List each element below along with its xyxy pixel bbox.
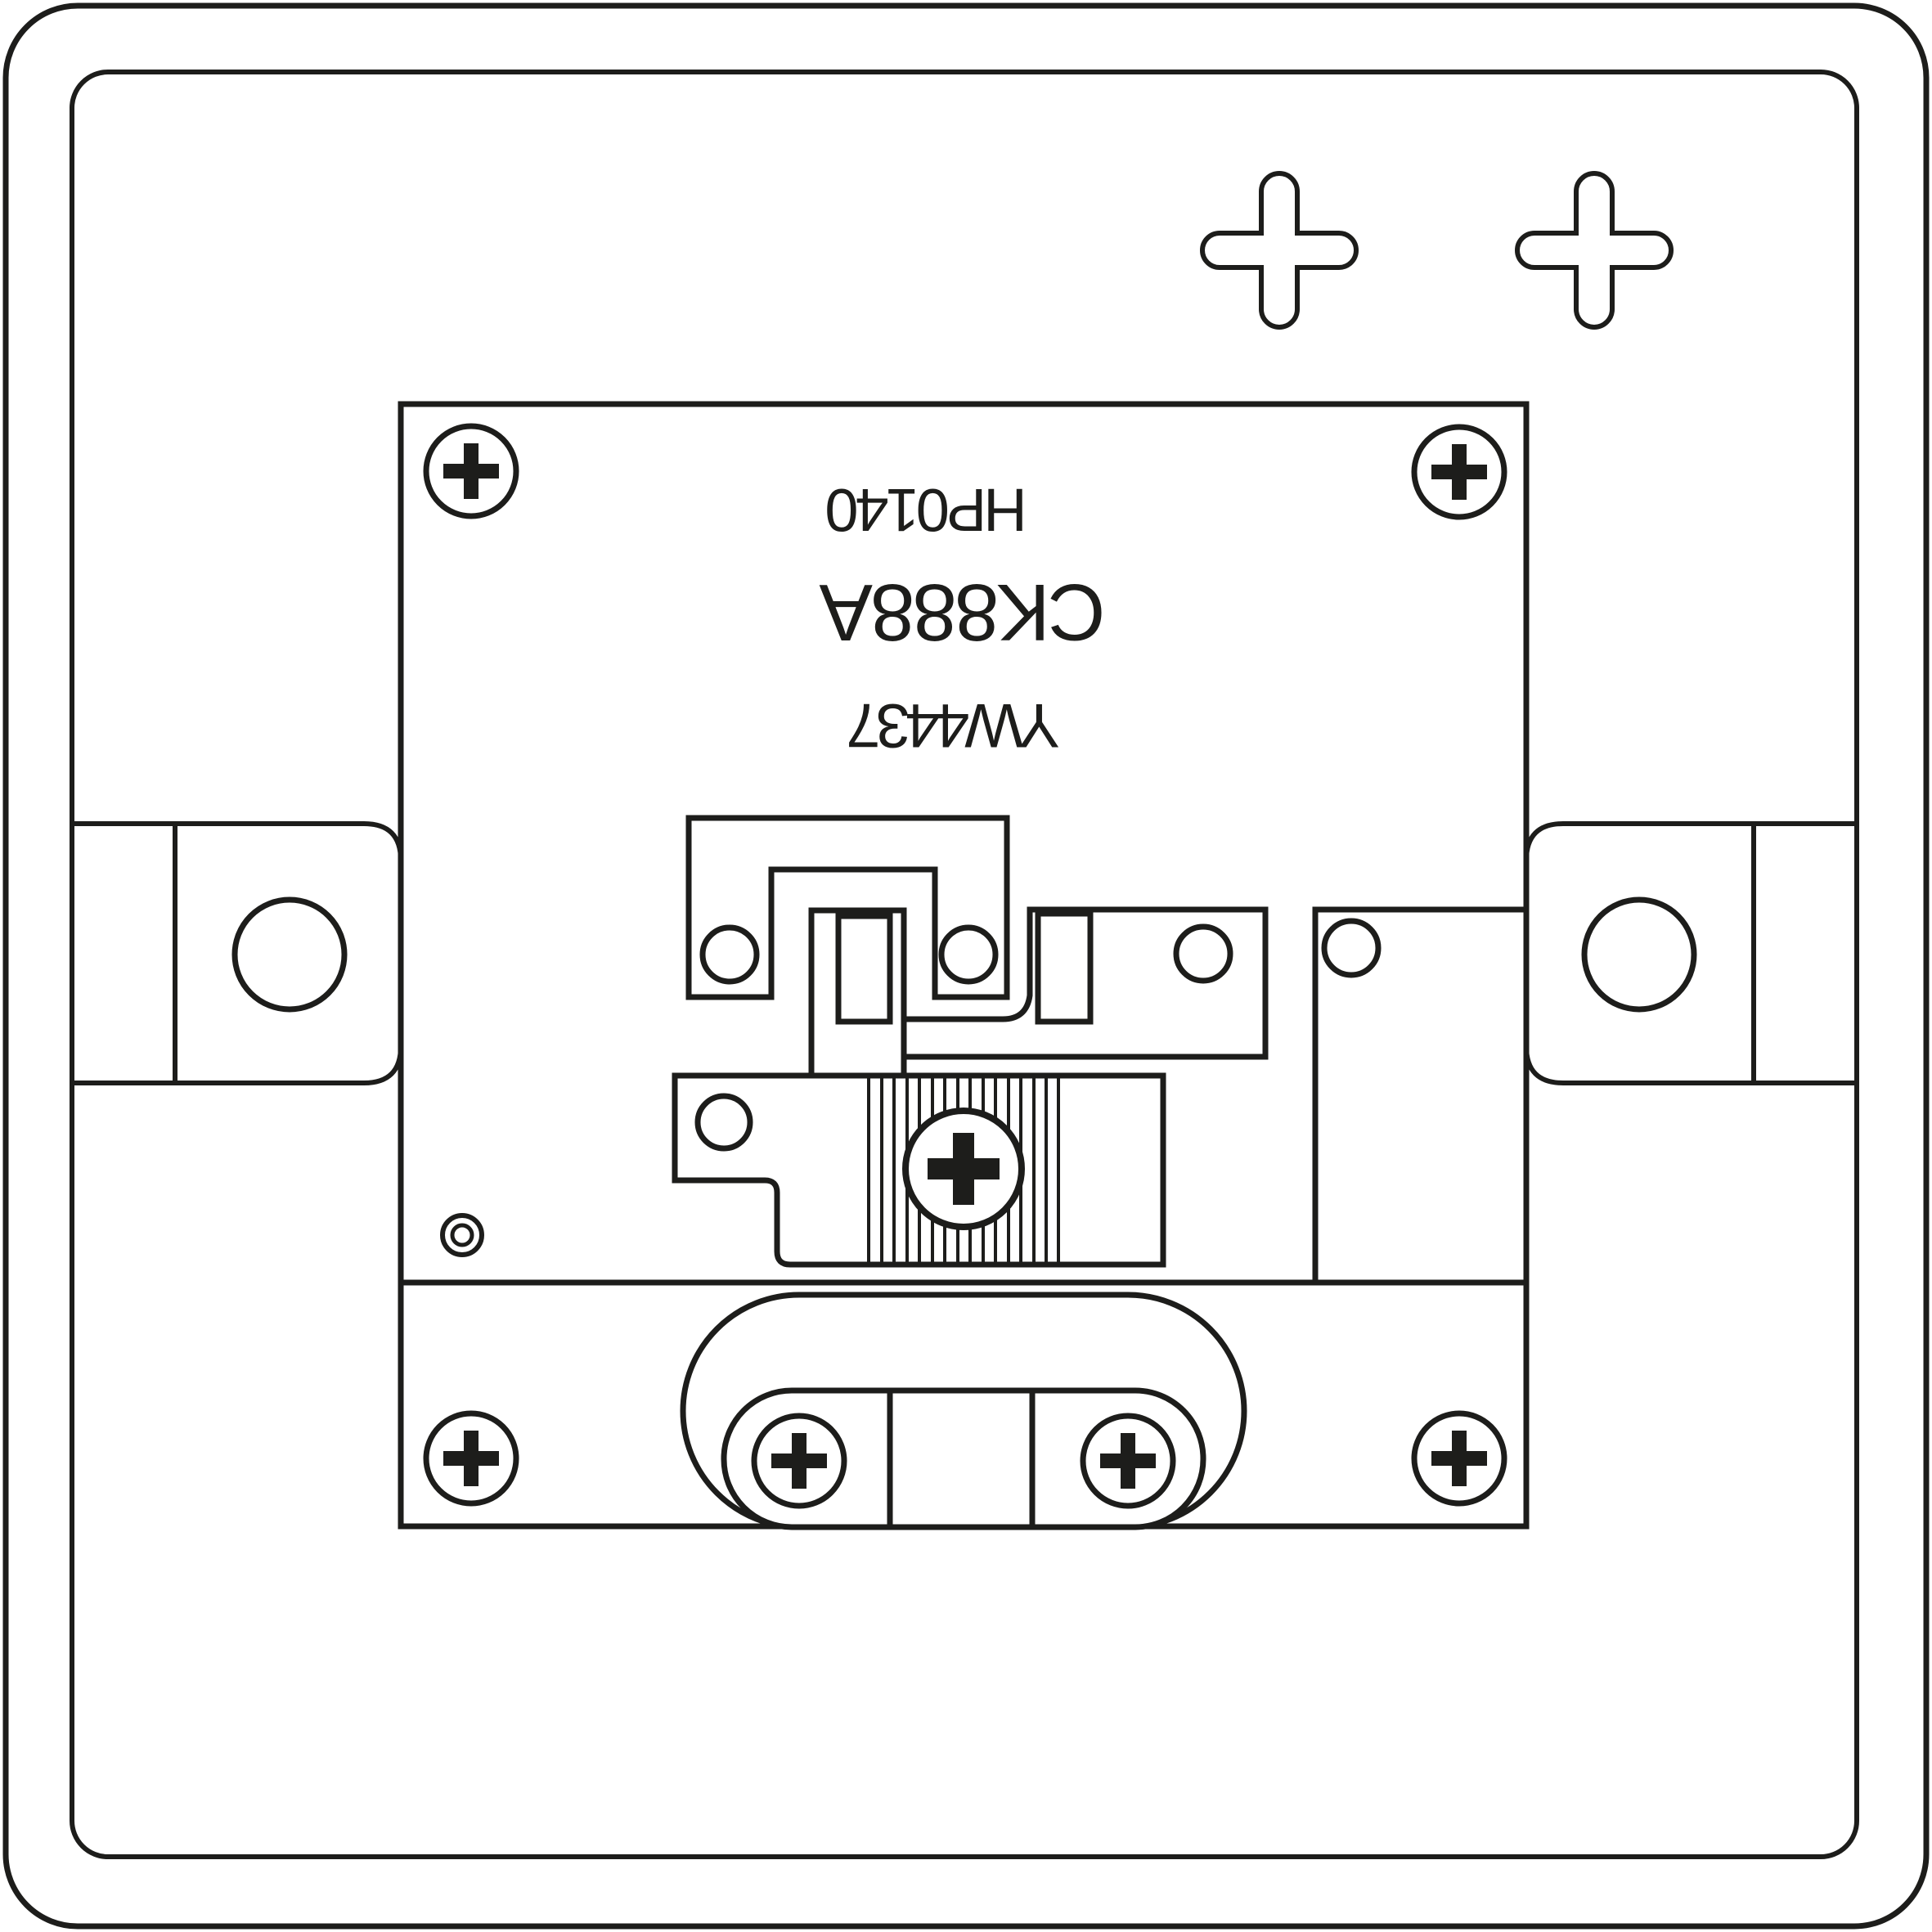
model-code-label: CK888A xyxy=(819,568,1106,658)
batch-code-label: YW4437 xyxy=(849,690,1060,760)
cable-clamp-block xyxy=(890,1391,1032,1527)
diagram-canvas: HP0140 CK888A YW4437 xyxy=(0,0,1932,1932)
frame-screw-bottom-right xyxy=(1414,1413,1504,1503)
clamp-screw-right xyxy=(1083,1416,1173,1506)
frame-screw-bottom-left xyxy=(426,1413,516,1503)
clamp-screw-left xyxy=(754,1416,844,1506)
contact-link xyxy=(811,910,904,1076)
knurled-adjuster-screw xyxy=(905,1111,1022,1227)
switch-rear-diagram: HP0140 CK888A YW4437 xyxy=(0,0,1932,1932)
frame-screw-top-left xyxy=(426,426,516,516)
frame-screw-top-right xyxy=(1414,427,1504,517)
print-code-label: HP0140 xyxy=(826,476,1027,544)
